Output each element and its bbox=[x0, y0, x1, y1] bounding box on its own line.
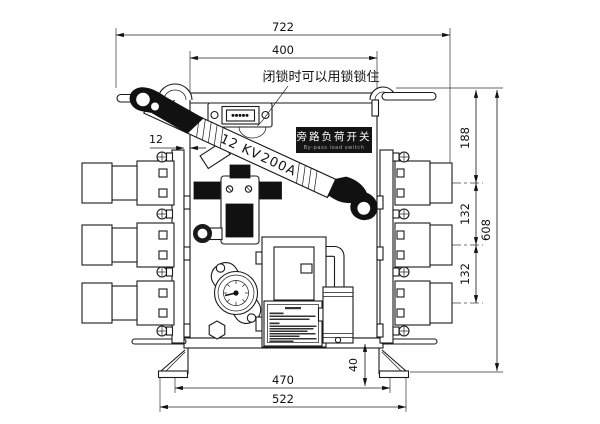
screw-icon bbox=[262, 112, 269, 119]
drain-screw bbox=[335, 337, 340, 342]
right-hook-bar bbox=[382, 93, 436, 101]
lock-note: 闭锁时可以用锁锁住 bbox=[262, 69, 379, 85]
engineering-drawing: 旁路负荷开关 By-pass load switch bbox=[0, 0, 600, 424]
bushing bbox=[395, 223, 452, 267]
grip-hole bbox=[136, 93, 150, 107]
dim-bushing-spacing-upper: 132 bbox=[458, 203, 472, 225]
bolt bbox=[393, 267, 409, 277]
wrench-hole bbox=[357, 202, 370, 215]
right-hook-stub bbox=[372, 100, 379, 116]
right-terminal-block bbox=[260, 182, 282, 199]
dim-overall-width: 722 bbox=[272, 20, 294, 34]
gauge-screw-hole bbox=[247, 314, 255, 322]
dim-overall-height: 608 bbox=[479, 219, 493, 241]
bushing bbox=[82, 281, 174, 325]
bushing bbox=[395, 281, 452, 325]
bolt bbox=[393, 152, 409, 162]
left-foot bbox=[159, 348, 189, 378]
screw-icon bbox=[211, 112, 218, 119]
mechanism-window bbox=[226, 204, 253, 237]
dim-bushing-spacing-lower: 132 bbox=[458, 263, 472, 285]
bolt bbox=[157, 209, 173, 219]
right-bushings bbox=[395, 161, 452, 325]
dim-foot-height: 40 bbox=[347, 358, 360, 372]
dim-base-width-inner: 470 bbox=[272, 373, 294, 387]
bolt bbox=[157, 326, 173, 336]
switch-name-zh: 旁路负荷开关 bbox=[297, 130, 372, 143]
control-box bbox=[256, 237, 326, 347]
right-foot bbox=[379, 348, 409, 378]
gauge-screw-hole bbox=[216, 264, 224, 272]
bolt bbox=[393, 209, 409, 219]
dim-top-width: 400 bbox=[272, 43, 294, 57]
dim-plate-thickness: 12 bbox=[149, 133, 163, 146]
nameplate-title-line bbox=[285, 307, 301, 309]
grip-hole bbox=[151, 103, 159, 111]
dim-base-width-outer: 522 bbox=[272, 392, 294, 406]
left-bushings bbox=[82, 161, 174, 325]
bolt bbox=[157, 152, 173, 162]
bushing bbox=[395, 161, 452, 205]
switch-name-en: By-pass load switch bbox=[304, 145, 365, 151]
bolt bbox=[393, 326, 409, 336]
dim-bushing-top-offset: 188 bbox=[458, 127, 472, 149]
bushing bbox=[82, 161, 174, 205]
hex-plug bbox=[209, 321, 225, 339]
left-terminal-block bbox=[194, 182, 220, 199]
bolt bbox=[157, 267, 173, 277]
instruction-nameplate bbox=[264, 301, 322, 346]
drawing-page: 旁路负荷开关 By-pass load switch bbox=[0, 0, 600, 424]
nameplate-label: 旁路负荷开关 By-pass load switch bbox=[296, 127, 372, 153]
bushing bbox=[82, 223, 174, 267]
handle-coupling bbox=[230, 165, 250, 178]
